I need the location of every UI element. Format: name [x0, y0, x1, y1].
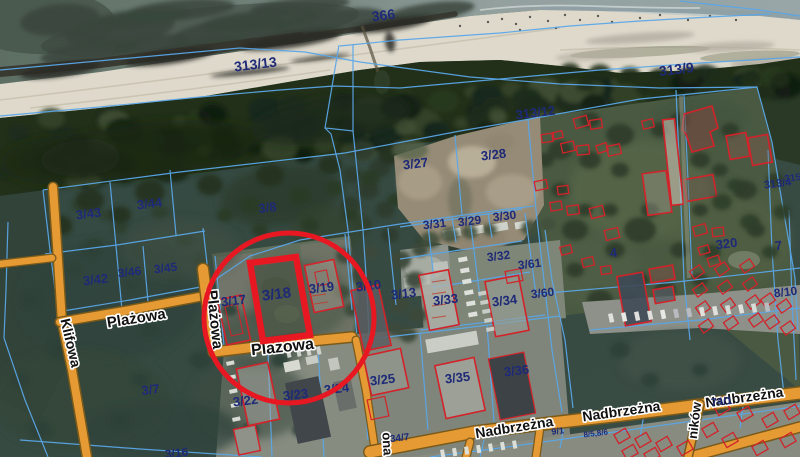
svg-text:366: 366 — [371, 6, 396, 25]
svg-text:3/43: 3/43 — [75, 205, 102, 223]
svg-text:3/45: 3/45 — [153, 260, 178, 277]
svg-text:320: 320 — [715, 235, 738, 253]
svg-text:3/28: 3/28 — [480, 146, 507, 164]
svg-text:3/25: 3/25 — [369, 371, 396, 389]
svg-text:3/17: 3/17 — [220, 292, 247, 310]
svg-text:9/1: 9/1 — [551, 425, 565, 436]
svg-text:3/18: 3/18 — [261, 284, 292, 304]
svg-text:8/10: 8/10 — [773, 284, 798, 301]
svg-text:3/29: 3/29 — [457, 213, 482, 230]
svg-text:315: 315 — [784, 172, 800, 185]
svg-text:3/27: 3/27 — [402, 155, 429, 173]
svg-text:3/32: 3/32 — [486, 248, 511, 265]
svg-text:3/34: 3/34 — [491, 291, 519, 309]
svg-text:3/61: 3/61 — [517, 256, 542, 273]
svg-text:3/35: 3/35 — [444, 369, 471, 387]
svg-text:3/8: 3/8 — [258, 199, 278, 216]
svg-text:3/33: 3/33 — [432, 291, 459, 309]
svg-text:3/16: 3/16 — [164, 445, 189, 457]
svg-text:3/60: 3/60 — [530, 285, 555, 302]
svg-text:3/42: 3/42 — [82, 271, 109, 289]
svg-text:3/30: 3/30 — [492, 208, 517, 225]
svg-text:3/13: 3/13 — [390, 285, 417, 303]
svg-text:3/46: 3/46 — [117, 264, 142, 281]
svg-text:3/19: 3/19 — [308, 279, 335, 297]
svg-text:3/7: 3/7 — [141, 381, 161, 398]
svg-text:3/31: 3/31 — [422, 216, 447, 233]
svg-text:3/36: 3/36 — [503, 362, 530, 380]
svg-text:3/44: 3/44 — [136, 194, 164, 212]
